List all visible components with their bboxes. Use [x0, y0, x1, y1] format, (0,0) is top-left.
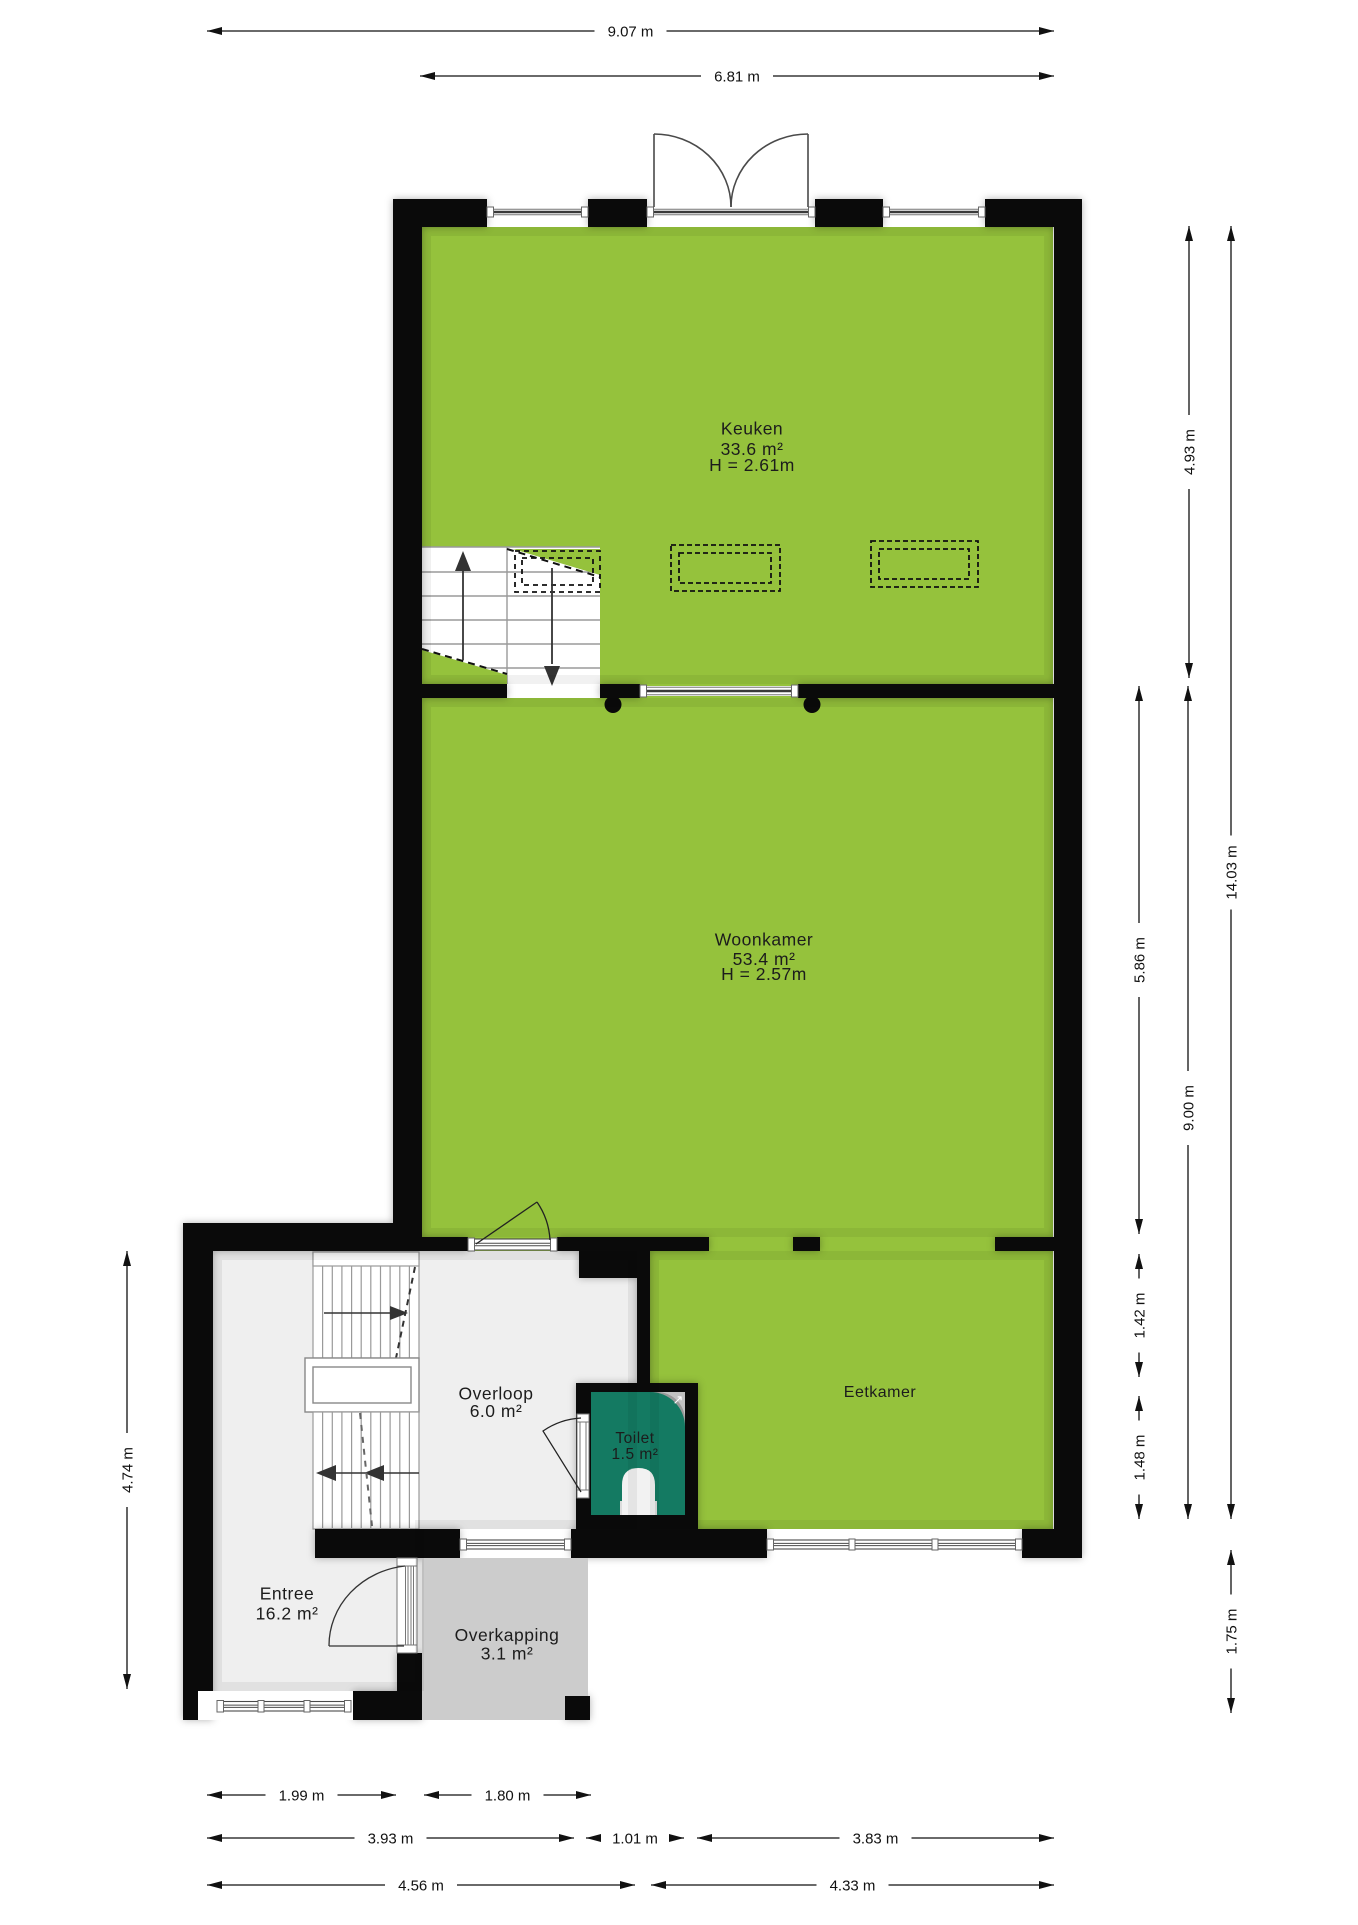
svg-text:6.0 m²: 6.0 m²: [470, 1401, 523, 1421]
svg-text:3.1 m²: 3.1 m²: [481, 1644, 534, 1664]
svg-text:1.80 m: 1.80 m: [485, 1788, 531, 1805]
svg-text:4.33 m: 4.33 m: [830, 1878, 876, 1895]
svg-text:1.48 m: 1.48 m: [1132, 1435, 1149, 1481]
svg-text:6.81 m: 6.81 m: [714, 69, 760, 86]
svg-text:Entree: Entree: [260, 1584, 315, 1604]
svg-text:1.42 m: 1.42 m: [1132, 1293, 1149, 1339]
svg-text:Overkapping: Overkapping: [455, 1625, 560, 1645]
svg-text:Toilet: Toilet: [615, 1430, 654, 1447]
svg-text:16.2 m²: 16.2 m²: [256, 1604, 319, 1624]
svg-text:Eetkamer: Eetkamer: [844, 1384, 917, 1401]
svg-text:14.03 m: 14.03 m: [1224, 845, 1241, 899]
svg-text:5.86 m: 5.86 m: [1132, 937, 1149, 983]
svg-text:4.74 m: 4.74 m: [120, 1447, 137, 1493]
svg-text:4.93 m: 4.93 m: [1182, 429, 1199, 475]
svg-text:1.99 m: 1.99 m: [279, 1788, 325, 1805]
svg-text:1.5 m²: 1.5 m²: [612, 1446, 659, 1463]
svg-text:Woonkamer: Woonkamer: [715, 930, 814, 950]
svg-text:1.75 m: 1.75 m: [1224, 1609, 1241, 1655]
svg-text:H = 2.61m: H = 2.61m: [709, 455, 795, 475]
svg-text:H = 2.57m: H = 2.57m: [721, 964, 807, 984]
svg-text:9.07 m: 9.07 m: [608, 24, 654, 41]
svg-text:↗: ↗: [673, 1392, 684, 1407]
svg-text:1.01 m: 1.01 m: [612, 1831, 658, 1848]
svg-text:Keuken: Keuken: [721, 419, 783, 439]
svg-text:3.93 m: 3.93 m: [368, 1831, 414, 1848]
svg-text:4.56 m: 4.56 m: [398, 1878, 444, 1895]
svg-text:3.83 m: 3.83 m: [853, 1831, 899, 1848]
svg-text:9.00 m: 9.00 m: [1181, 1085, 1198, 1131]
